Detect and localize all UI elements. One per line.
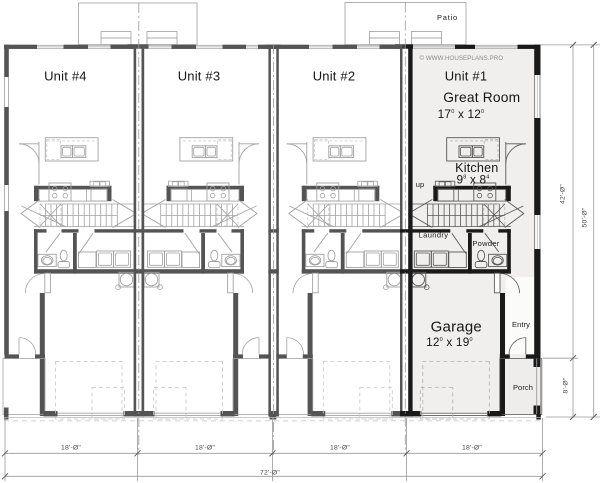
svg-text:120 x 190: 120 x 190	[426, 335, 473, 349]
svg-text:18'-Ø": 18'-Ø"	[61, 445, 81, 452]
svg-text:Great Room: Great Room	[443, 90, 520, 105]
svg-text:Unit #3: Unit #3	[178, 69, 221, 84]
svg-text:50'-Ø": 50'-Ø"	[582, 207, 589, 227]
svg-text:18'-Ø": 18'-Ø"	[330, 445, 350, 452]
svg-text:98 x 84: 98 x 84	[456, 173, 489, 187]
svg-text:Powder: Powder	[472, 239, 499, 248]
svg-text:Unit #1: Unit #1	[445, 69, 488, 84]
svg-text:Unit #4: Unit #4	[44, 69, 87, 84]
svg-text:170 x 120: 170 x 120	[438, 107, 485, 121]
svg-text:© WWW.HOUSEPLANS.PRO: © WWW.HOUSEPLANS.PRO	[420, 55, 504, 62]
svg-text:42'-Ø": 42'-Ø"	[560, 184, 567, 204]
svg-text:18'-Ø": 18'-Ø"	[462, 445, 482, 452]
svg-text:8'-Ø": 8'-Ø"	[563, 377, 570, 393]
svg-text:Garage: Garage	[431, 318, 482, 335]
svg-text:Patio: Patio	[437, 13, 458, 22]
svg-text:Porch: Porch	[513, 383, 533, 392]
svg-text:up: up	[416, 180, 425, 189]
svg-text:72'-Ø": 72'-Ø"	[260, 470, 280, 477]
svg-text:Unit #2: Unit #2	[313, 69, 356, 84]
svg-text:Entry: Entry	[512, 320, 530, 329]
svg-text:18'-Ø": 18'-Ø"	[195, 445, 215, 452]
svg-text:Laundry: Laundry	[419, 230, 449, 239]
